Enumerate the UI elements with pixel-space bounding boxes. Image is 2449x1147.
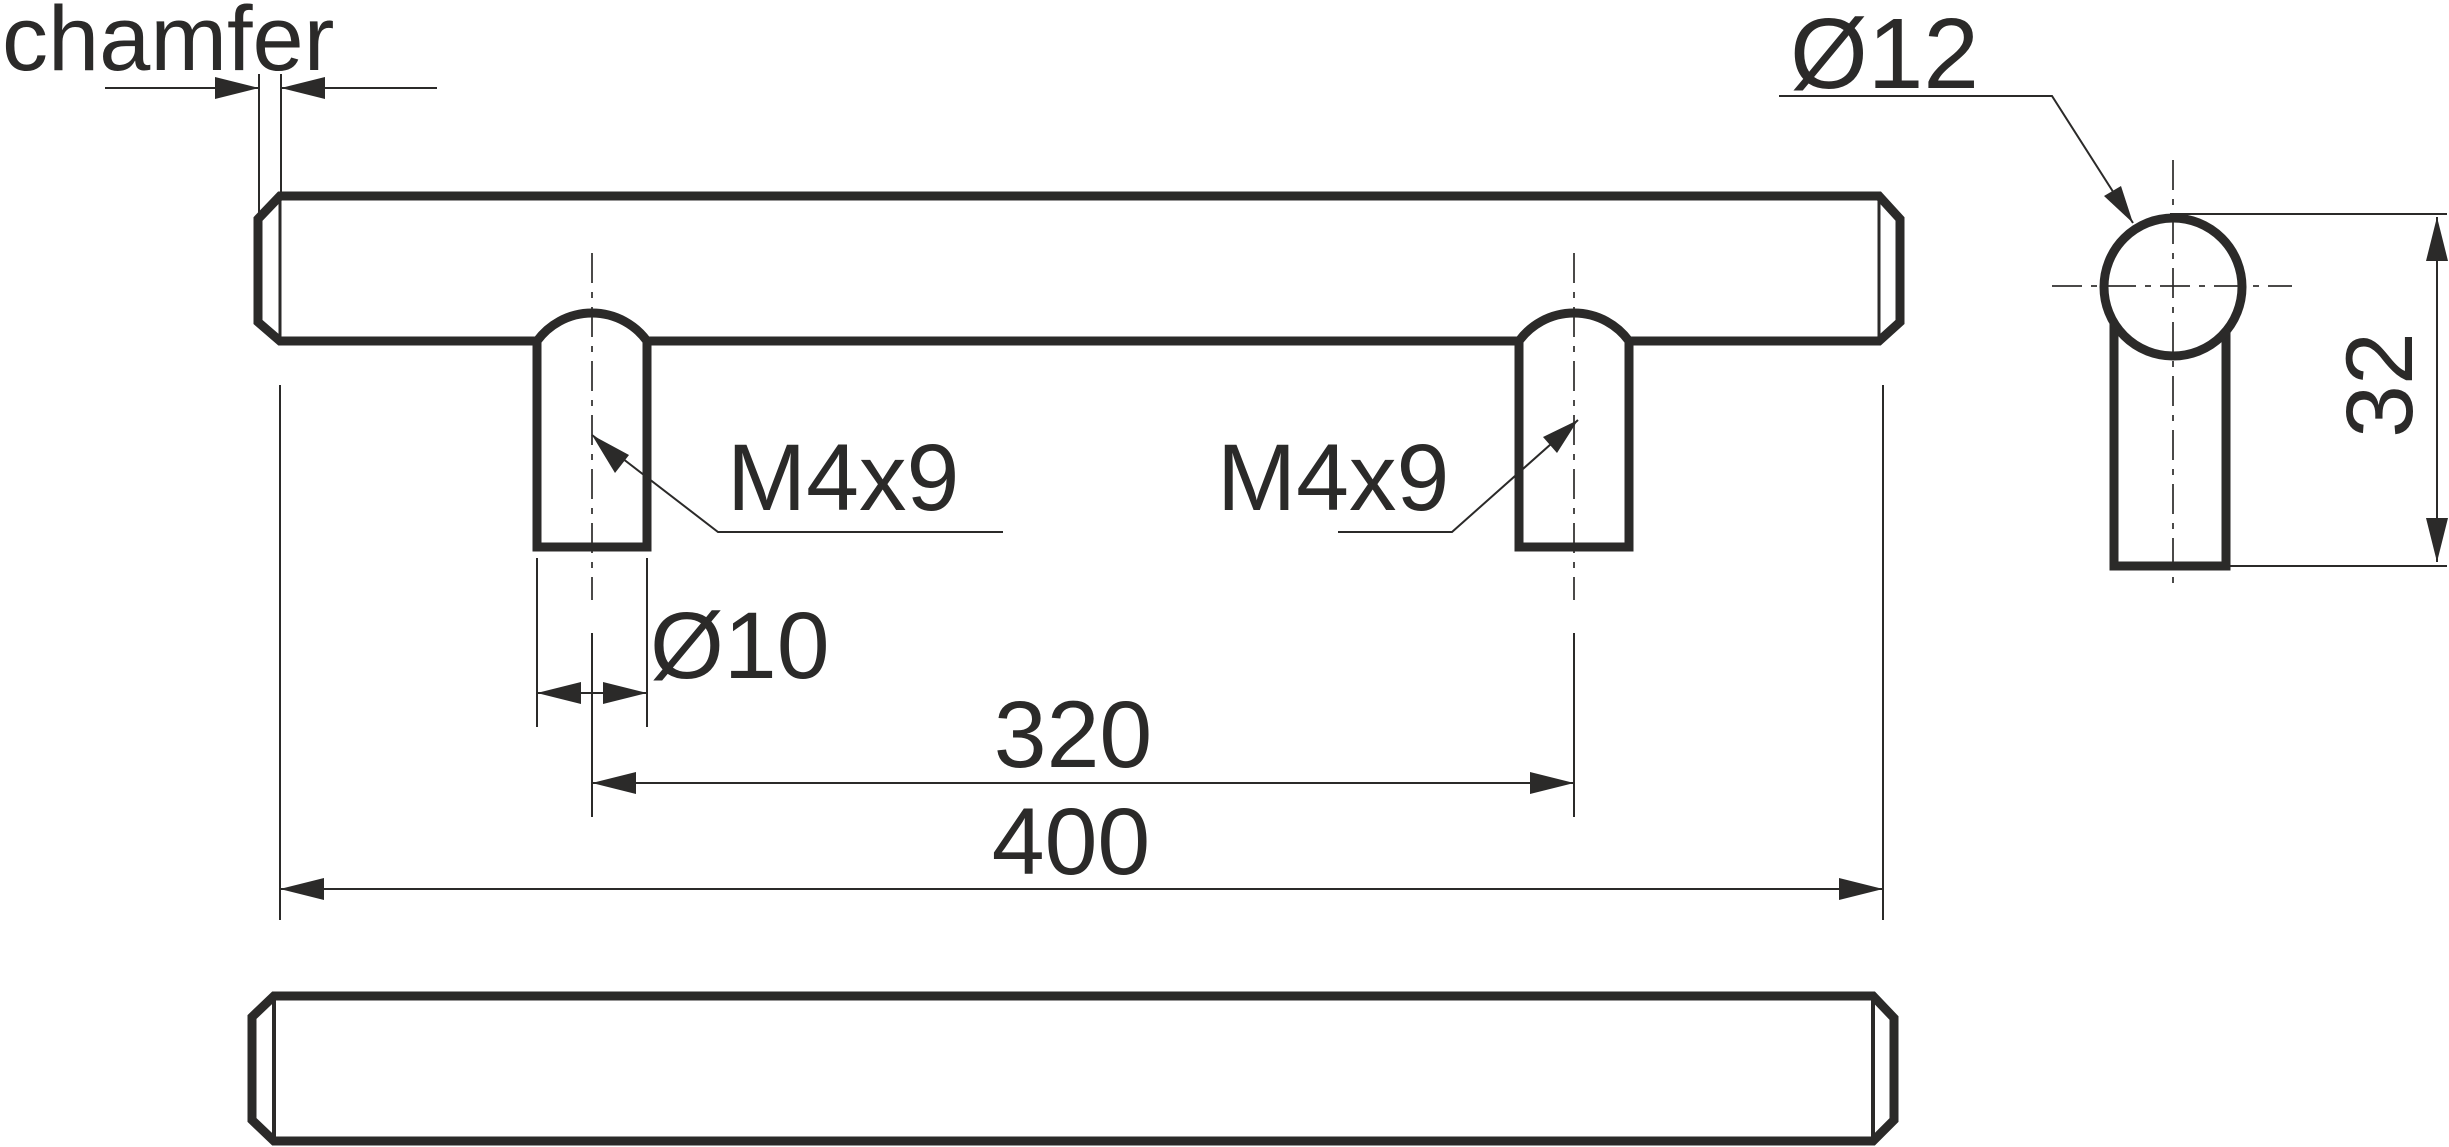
- front-view: [258, 196, 1900, 600]
- technical-drawing-page: chamfer M4x9 M4x9 Ø10 320: [0, 0, 2449, 1147]
- dia12-arrowhead: [2104, 186, 2133, 223]
- thread-callout-left: M4x9: [592, 425, 1003, 532]
- bar-outline: [258, 196, 1900, 341]
- d320-arrow-left: [592, 772, 636, 794]
- chamfer-dimension: chamfer: [2, 0, 437, 219]
- d400-arrow-left: [280, 878, 324, 900]
- d32-arrow-top: [2426, 217, 2448, 261]
- d400-label: 400: [992, 789, 1151, 895]
- dia12-label: Ø12: [1790, 0, 1979, 110]
- thread-left-arrowhead: [592, 435, 629, 473]
- chamfer-label: chamfer: [2, 0, 334, 90]
- bar-diameter-callout: Ø12: [1779, 0, 2133, 223]
- d32-arrow-bottom: [2426, 518, 2448, 562]
- thread-callout-right: M4x9: [1217, 420, 1578, 532]
- dia10-arrow-left: [537, 682, 581, 704]
- dia10-label: Ø10: [650, 593, 830, 699]
- top-view: [252, 996, 1894, 1141]
- thread-left-label: M4x9: [727, 425, 959, 531]
- thread-right-label: M4x9: [1217, 425, 1449, 531]
- d320-arrow-right: [1530, 772, 1574, 794]
- thread-right-arrowhead: [1543, 420, 1578, 453]
- dia12-leader: [1779, 96, 2133, 223]
- post-diameter-dimension: Ø10: [537, 558, 830, 727]
- d400-arrow-right: [1839, 878, 1883, 900]
- d32-label: 32: [2327, 332, 2433, 438]
- d320-label: 320: [994, 682, 1153, 788]
- handle-dimension-drawing: chamfer M4x9 M4x9 Ø10 320: [0, 0, 2449, 1147]
- top-view-outline: [252, 996, 1894, 1141]
- dia10-arrow-right: [603, 682, 647, 704]
- total-length-dimension: 400: [280, 385, 1883, 920]
- side-view: [2052, 160, 2292, 588]
